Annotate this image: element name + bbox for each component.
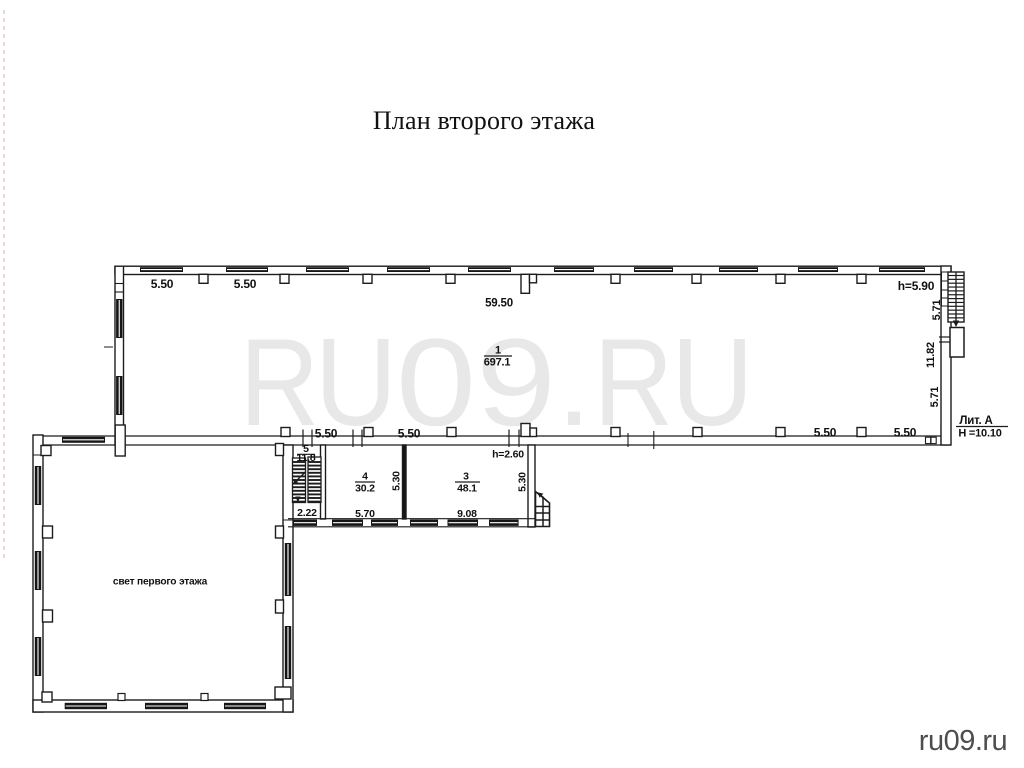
svg-text:4: 4 bbox=[362, 471, 368, 483]
svg-text:h=5.90: h=5.90 bbox=[898, 279, 935, 293]
svg-text:30.2: 30.2 bbox=[355, 483, 375, 495]
svg-text:5.71: 5.71 bbox=[929, 387, 941, 408]
svg-text:11.8: 11.8 bbox=[296, 452, 315, 464]
svg-text:5.30: 5.30 bbox=[517, 472, 529, 492]
svg-text:R: R bbox=[240, 313, 320, 451]
svg-text:5.50: 5.50 bbox=[814, 426, 837, 440]
svg-text:5.50: 5.50 bbox=[234, 277, 257, 291]
svg-text:5.30: 5.30 bbox=[391, 471, 403, 491]
svg-text:59.50: 59.50 bbox=[485, 298, 513, 310]
svg-text:План второго этажа: План второго этажа bbox=[373, 106, 596, 135]
svg-text:3: 3 bbox=[463, 471, 469, 483]
svg-text:9: 9 bbox=[476, 313, 556, 452]
svg-text:48.1: 48.1 bbox=[457, 483, 477, 495]
svg-text:5.70: 5.70 bbox=[355, 508, 375, 520]
svg-text:11.82: 11.82 bbox=[925, 342, 937, 368]
svg-text:ru09.ru: ru09.ru bbox=[919, 725, 1007, 757]
svg-text:.: . bbox=[557, 314, 591, 452]
svg-text:5.50: 5.50 bbox=[398, 427, 421, 441]
svg-text:U: U bbox=[671, 314, 753, 452]
svg-text:5.50: 5.50 bbox=[894, 426, 917, 440]
svg-text:Лит. А: Лит. А bbox=[959, 415, 992, 427]
svg-text:Н =10.10: Н =10.10 bbox=[958, 428, 1001, 440]
svg-text:2.22: 2.22 bbox=[297, 507, 317, 519]
svg-text:1: 1 bbox=[495, 345, 501, 357]
svg-text:R: R bbox=[594, 313, 674, 451]
svg-text:h=2.60: h=2.60 bbox=[492, 449, 524, 461]
svg-text:697.1: 697.1 bbox=[484, 357, 511, 369]
svg-text:9.08: 9.08 bbox=[457, 508, 477, 520]
svg-text:5.71: 5.71 bbox=[931, 300, 943, 321]
svg-text:5.50: 5.50 bbox=[315, 427, 338, 441]
svg-text:5.50: 5.50 bbox=[151, 277, 174, 291]
svg-text:свет первого этажа: свет первого этажа bbox=[113, 577, 208, 588]
